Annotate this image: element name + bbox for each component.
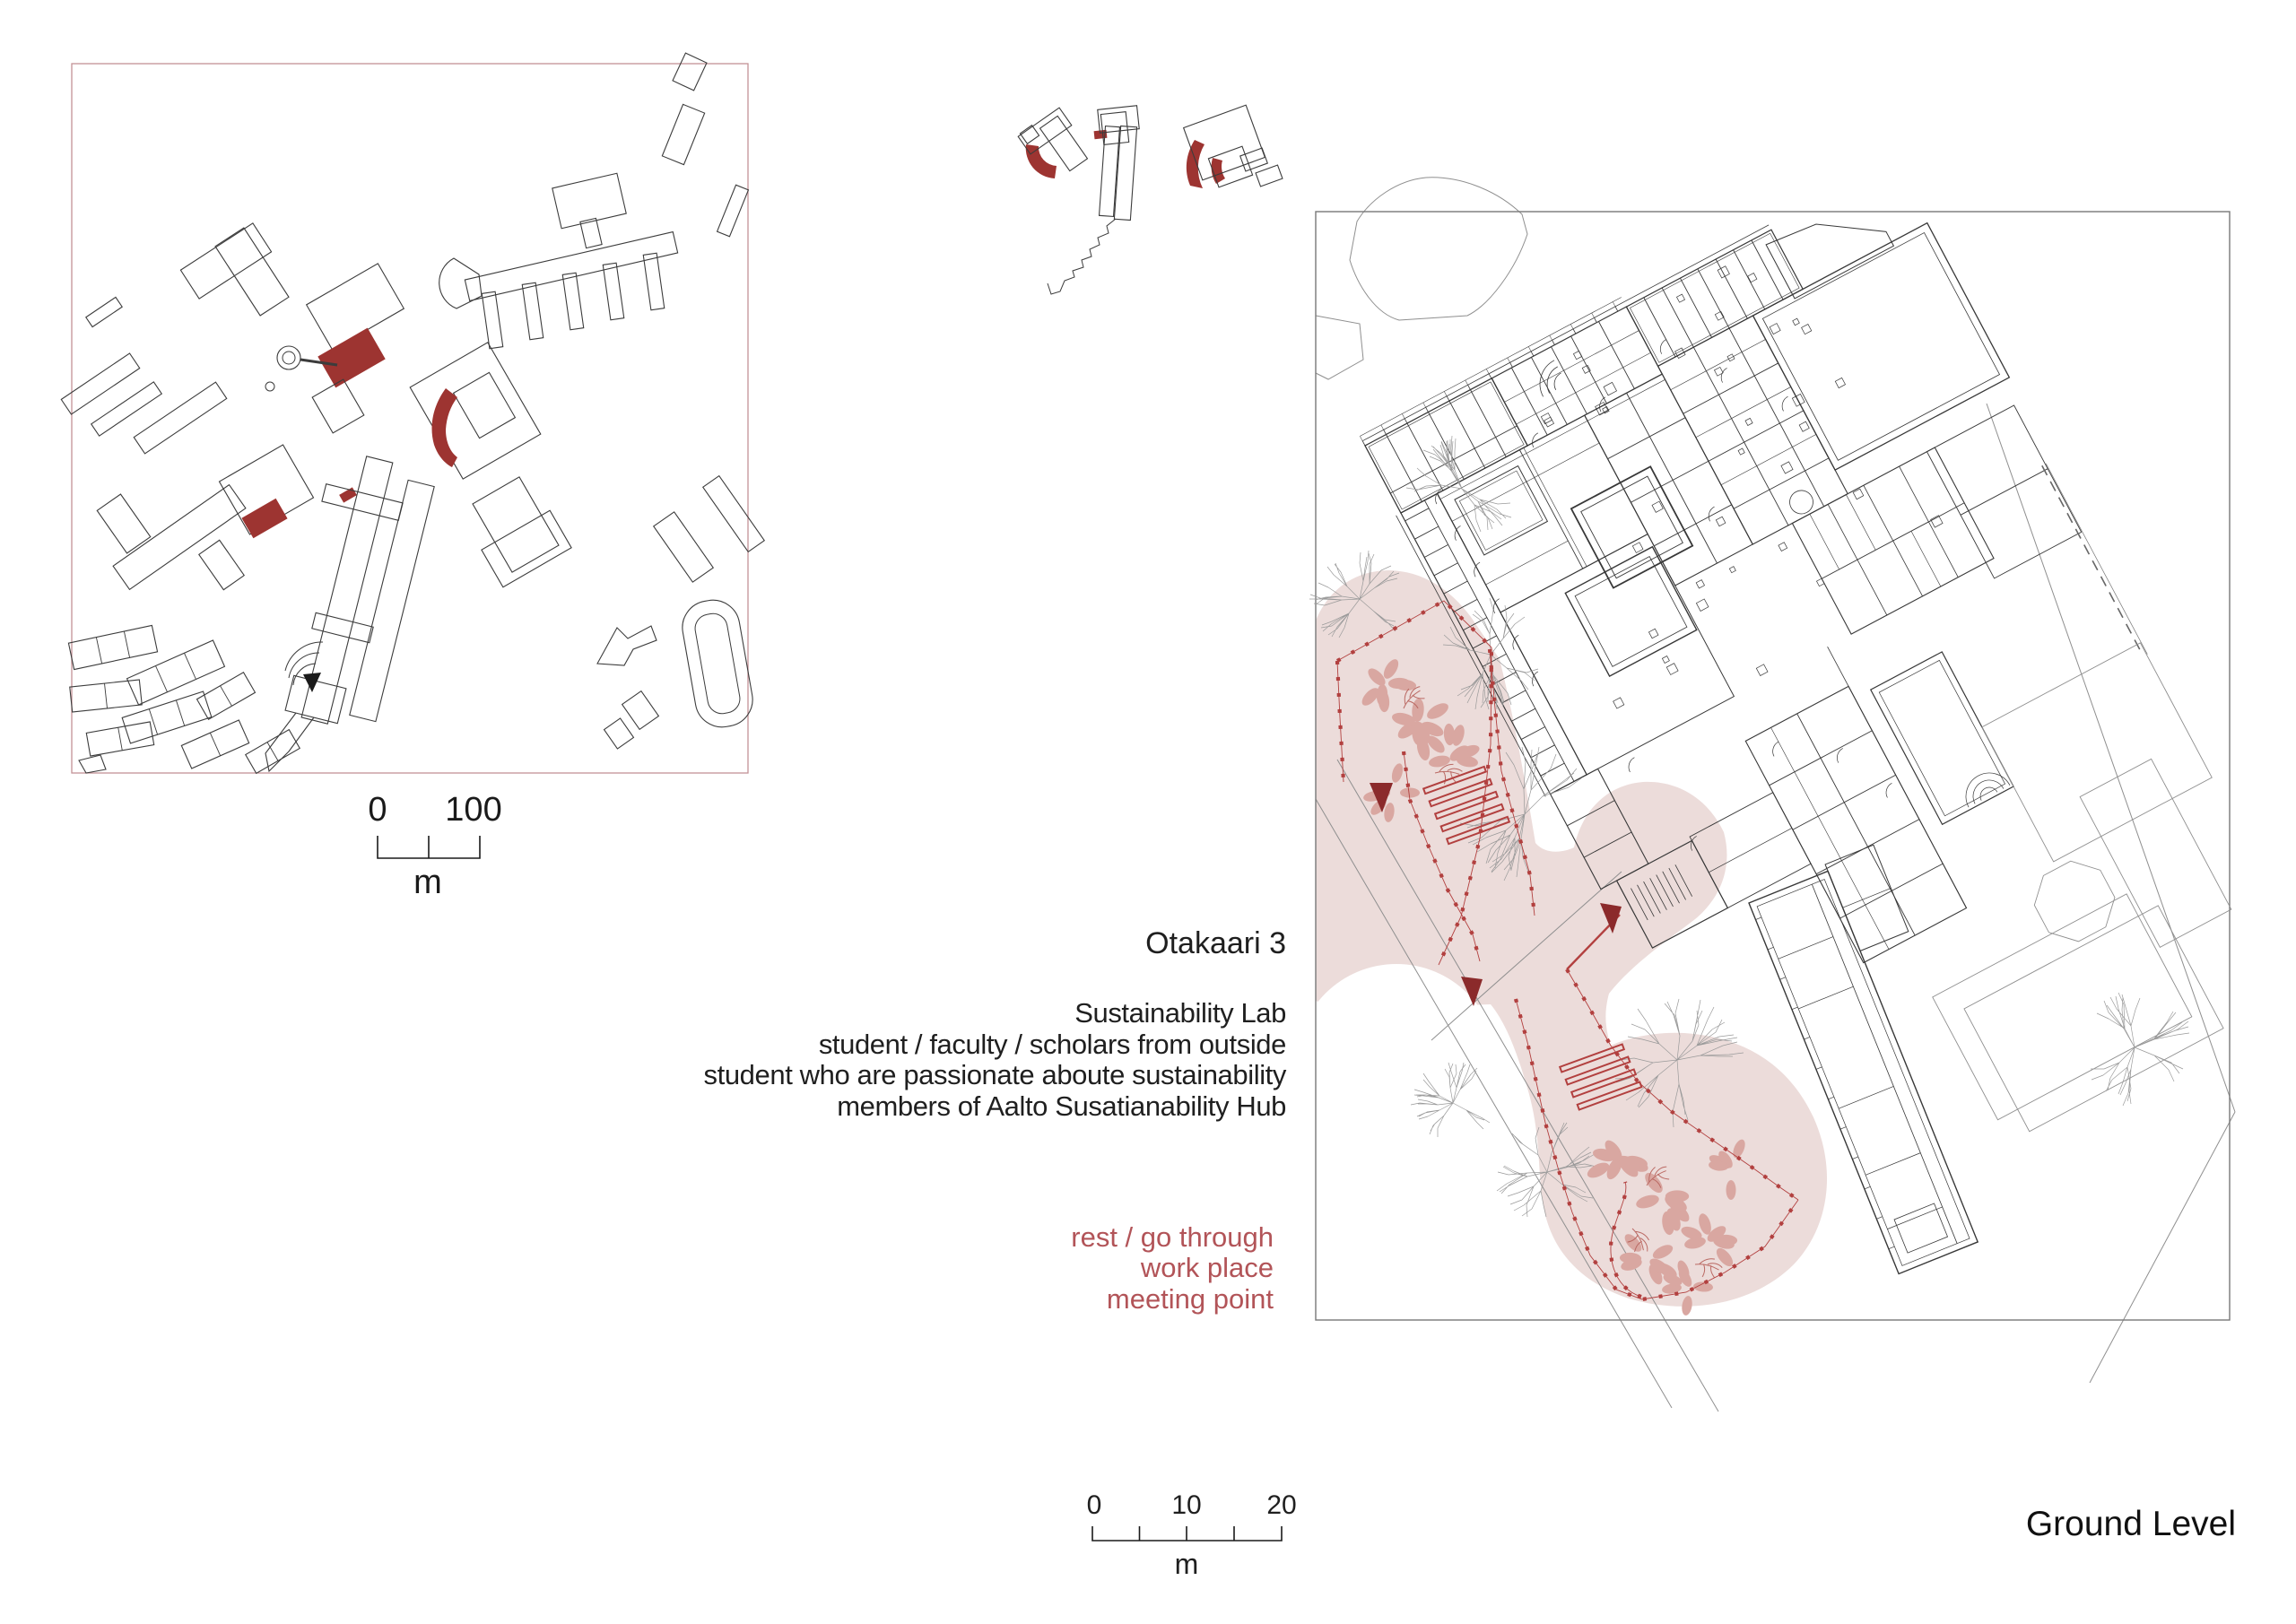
svg-text:m: m [413,864,442,901]
svg-text:0: 0 [368,791,387,829]
svg-text:work place: work place [1140,1252,1274,1283]
svg-text:0: 0 [1087,1490,1102,1520]
svg-text:members of Aalto Susatianabili: members of Aalto Susatianability Hub [837,1090,1286,1122]
svg-text:Sustainability Lab: Sustainability Lab [1074,997,1286,1029]
svg-text:100: 100 [445,791,501,829]
svg-text:20: 20 [1266,1490,1296,1520]
svg-text:rest / go through: rest / go through [1071,1221,1274,1253]
svg-text:m: m [1175,1548,1199,1580]
svg-text:Ground Level: Ground Level [2026,1505,2236,1543]
svg-text:10: 10 [1171,1490,1201,1520]
svg-text:Otakaari 3: Otakaari 3 [1145,926,1286,960]
svg-text:meeting point: meeting point [1107,1283,1274,1315]
svg-text:student / faculty / scholars f: student / faculty / scholars from outsid… [819,1029,1286,1060]
svg-text:student who are passionate abo: student who are passionate aboute sustai… [704,1059,1287,1090]
